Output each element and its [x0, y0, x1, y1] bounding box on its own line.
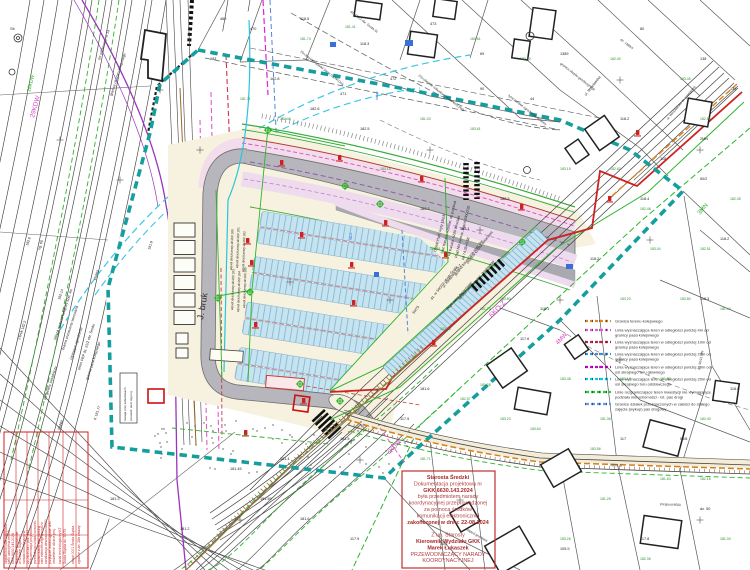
- svg-text:118.5: 118.5: [300, 17, 309, 21]
- svg-text:Z up. Starosty: Z up. Starosty: [431, 533, 465, 539]
- svg-text:183.48: 183.48: [560, 377, 571, 381]
- svg-text:prowadz. sieci wg proj.: prowadz. sieci wg proj.: [129, 390, 133, 421]
- svg-text:182.40: 182.40: [520, 57, 531, 61]
- svg-text:50/2: 50/2: [700, 177, 707, 181]
- svg-text:183.23: 183.23: [500, 417, 511, 421]
- svg-text:Marek Łukaszek: Marek Łukaszek: [427, 545, 468, 551]
- svg-text:181.74: 181.74: [480, 307, 491, 311]
- svg-text:182.5: 182.5: [360, 127, 370, 131]
- svg-text:PRZEWODNICZĄCY NARADY: PRZEWODNICZĄCY NARADY: [410, 552, 485, 558]
- svg-text:komunikacji elektronicznej: komunikacji elektronicznej: [417, 513, 480, 519]
- svg-text:118.4: 118.4: [640, 197, 649, 201]
- svg-text:183.61: 183.61: [470, 127, 481, 131]
- svg-text:183.80: 183.80: [500, 297, 511, 301]
- svg-text:117.8: 117.8: [640, 537, 649, 541]
- svg-text:zajęcia (wykup) pas drogowy: zajęcia (wykup) pas drogowy: [615, 407, 666, 412]
- svg-text:kanał: kanał: [375, 91, 379, 100]
- svg-text:138: 138: [700, 57, 706, 61]
- svg-text:182.8: 182.8: [270, 77, 280, 81]
- svg-text:181.71: 181.71: [420, 457, 431, 461]
- svg-text:183.15: 183.15: [560, 167, 571, 171]
- svg-text:473: 473: [430, 22, 436, 26]
- svg-text:182.51: 182.51: [700, 247, 711, 251]
- svg-text:182.40: 182.40: [610, 57, 621, 61]
- svg-text:118: 118: [660, 157, 666, 161]
- svg-text:182.2: 182.2: [420, 207, 430, 211]
- svg-text:kanał technologiczny KT: kanał technologiczny KT: [58, 527, 62, 564]
- svg-text:183.80: 183.80: [680, 297, 691, 301]
- svg-text:zgodnie z art. 28b ustawy: zgodnie z art. 28b ustawy: [77, 525, 81, 564]
- svg-text:182.46: 182.46: [640, 207, 651, 211]
- svg-text:182.16: 182.16: [700, 477, 711, 481]
- svg-text:183.15: 183.15: [380, 167, 391, 171]
- svg-text:118.3: 118.3: [360, 42, 369, 46]
- svg-text:183.56: 183.56: [590, 447, 601, 451]
- svg-text:181.6: 181.6: [420, 387, 430, 391]
- svg-text:koordynacyjnej przeprowadzonej: koordynacyjnej przeprowadzonej: [409, 501, 488, 507]
- svg-text:182.16: 182.16: [700, 117, 711, 121]
- svg-text:183.64: 183.64: [530, 427, 541, 431]
- svg-text:181.41: 181.41: [345, 25, 356, 29]
- svg-text:117: 117: [620, 437, 626, 441]
- svg-text:była przedmiotem narady: była przedmiotem narady: [418, 494, 479, 500]
- svg-text:182.1: 182.1: [460, 227, 470, 231]
- svg-text:Granica terenu kolejowego: Granica terenu kolejowego: [615, 319, 663, 324]
- svg-text:50/73 dr: 50/73 dr: [610, 463, 623, 468]
- svg-text:139: 139: [730, 87, 736, 91]
- svg-text:105.9: 105.9: [560, 547, 570, 551]
- svg-text:183.53: 183.53: [440, 327, 451, 331]
- svg-text:osi skrajnego toru głównego: osi skrajnego toru głównego: [615, 370, 666, 375]
- svg-text:GKK.6630.143.2024: GKK.6630.143.2024: [423, 488, 472, 494]
- svg-text:118.1: 118.1: [540, 307, 549, 311]
- svg-text:181.71: 181.71: [240, 97, 251, 101]
- svg-text:181.44: 181.44: [720, 307, 731, 311]
- svg-text:183.45: 183.45: [680, 77, 691, 81]
- svg-text:181.2: 181.2: [180, 527, 190, 531]
- svg-text:183.26: 183.26: [560, 537, 571, 541]
- svg-text:183: 183: [210, 57, 216, 61]
- svg-text:181.25: 181.25: [600, 497, 611, 501]
- svg-text:118.2: 118.2: [720, 237, 729, 241]
- svg-text:182.40: 182.40: [700, 417, 711, 421]
- svg-text:granicy pasa kolejowego: granicy pasa kolejowego: [615, 333, 660, 338]
- svg-text:181.6: 181.6: [300, 517, 310, 521]
- svg-text:182.62: 182.62: [610, 167, 621, 171]
- svg-text:50/8: 50/8: [680, 437, 687, 441]
- svg-text:Środa Śląska dz. 50/73: Środa Śląska dz. 50/73: [62, 529, 67, 564]
- svg-text:oświetlenie uliczne proj.: oświetlenie uliczne proj.: [52, 528, 56, 564]
- svg-text:obręb 0001 Środa Śląska: obręb 0001 Środa Śląska: [70, 526, 75, 564]
- svg-text:181.45: 181.45: [230, 467, 242, 471]
- svg-text:181.3: 181.3: [110, 497, 120, 501]
- svg-text:dz. 50: dz. 50: [700, 507, 710, 511]
- svg-text:182.51: 182.51: [430, 247, 441, 251]
- svg-text:1389: 1389: [560, 52, 568, 56]
- svg-text:117.5: 117.5: [400, 417, 409, 421]
- svg-text:granicy pasa kolejowego: granicy pasa kolejowego: [615, 345, 660, 350]
- svg-text:470: 470: [250, 27, 256, 31]
- svg-text:Dokumentacja projektowa nr: Dokumentacja projektowa nr: [414, 481, 483, 487]
- svg-text:90: 90: [480, 87, 484, 91]
- svg-text:182.6: 182.6: [310, 107, 320, 111]
- svg-text:469: 469: [220, 17, 226, 21]
- svg-text:44: 44: [530, 97, 534, 101]
- svg-text:181.52: 181.52: [660, 377, 671, 381]
- svg-text:118.3: 118.3: [700, 297, 709, 301]
- svg-text:181.00: 181.00: [720, 537, 731, 541]
- svg-text:181.28: 181.28: [480, 383, 491, 387]
- svg-text:Starosta Średzki: Starosta Średzki: [427, 474, 470, 481]
- svg-text:182.57: 182.57: [460, 397, 471, 401]
- svg-text:182.35: 182.35: [730, 197, 741, 201]
- svg-text:472: 472: [390, 77, 396, 81]
- svg-text:118.2: 118.2: [620, 117, 629, 121]
- svg-text:69: 69: [480, 52, 484, 56]
- svg-text:50/3: 50/3: [440, 542, 447, 546]
- svg-text:181.59: 181.59: [260, 497, 272, 501]
- svg-text:117.6: 117.6: [520, 337, 529, 341]
- svg-text:183.04: 183.04: [650, 247, 661, 251]
- svg-text:Kierownik Wydziału GKK: Kierownik Wydziału GKK: [416, 539, 480, 545]
- svg-text:Uwaga przy zabudowach: Uwaga przy zabudowach: [123, 387, 127, 421]
- svg-text:118.2: 118.2: [590, 257, 599, 261]
- svg-text:osi skrajnego toru odstawczego: osi skrajnego toru odstawczego: [615, 382, 672, 387]
- svg-text:Sb: Sb: [10, 26, 16, 31]
- svg-text:2MN: 2MN: [700, 137, 708, 141]
- svg-text:KOORDYNACYJNEJ: KOORDYNACYJNEJ: [422, 558, 474, 564]
- svg-text:za pomocą środków: za pomocą środków: [424, 507, 472, 513]
- svg-text:117.9: 117.9: [350, 537, 359, 541]
- svg-text:181.4: 181.4: [280, 457, 290, 461]
- svg-text:183.18: 183.18: [620, 377, 631, 381]
- svg-text:181.5: 181.5: [340, 437, 350, 441]
- svg-text:181.36: 181.36: [600, 417, 611, 421]
- svg-text:183.20: 183.20: [620, 297, 631, 301]
- svg-text:118.0: 118.0: [730, 387, 739, 391]
- svg-text:183.61: 183.61: [470, 37, 481, 41]
- svg-text:181.74: 181.74: [300, 37, 311, 41]
- svg-text:WLZ: WLZ: [349, 232, 353, 240]
- svg-text:granicy pasa kolejowego: granicy pasa kolejowego: [615, 357, 660, 362]
- svg-text:182.35: 182.35: [640, 557, 651, 561]
- svg-text:471: 471: [340, 92, 346, 96]
- svg-text:podziału nieruchomości - ist.: podziału nieruchomości - ist. pas drogi: [615, 395, 683, 400]
- svg-text:zakończonej w dniu: 22-08-2024: zakończonej w dniu: 22-08-2024: [407, 520, 488, 526]
- svg-text:182.46: 182.46: [280, 117, 291, 121]
- svg-text:181.03: 181.03: [420, 117, 431, 121]
- svg-text:80: 80: [640, 27, 644, 31]
- svg-text:181.63: 181.63: [660, 477, 671, 481]
- svg-text:182.3: 182.3: [500, 197, 510, 201]
